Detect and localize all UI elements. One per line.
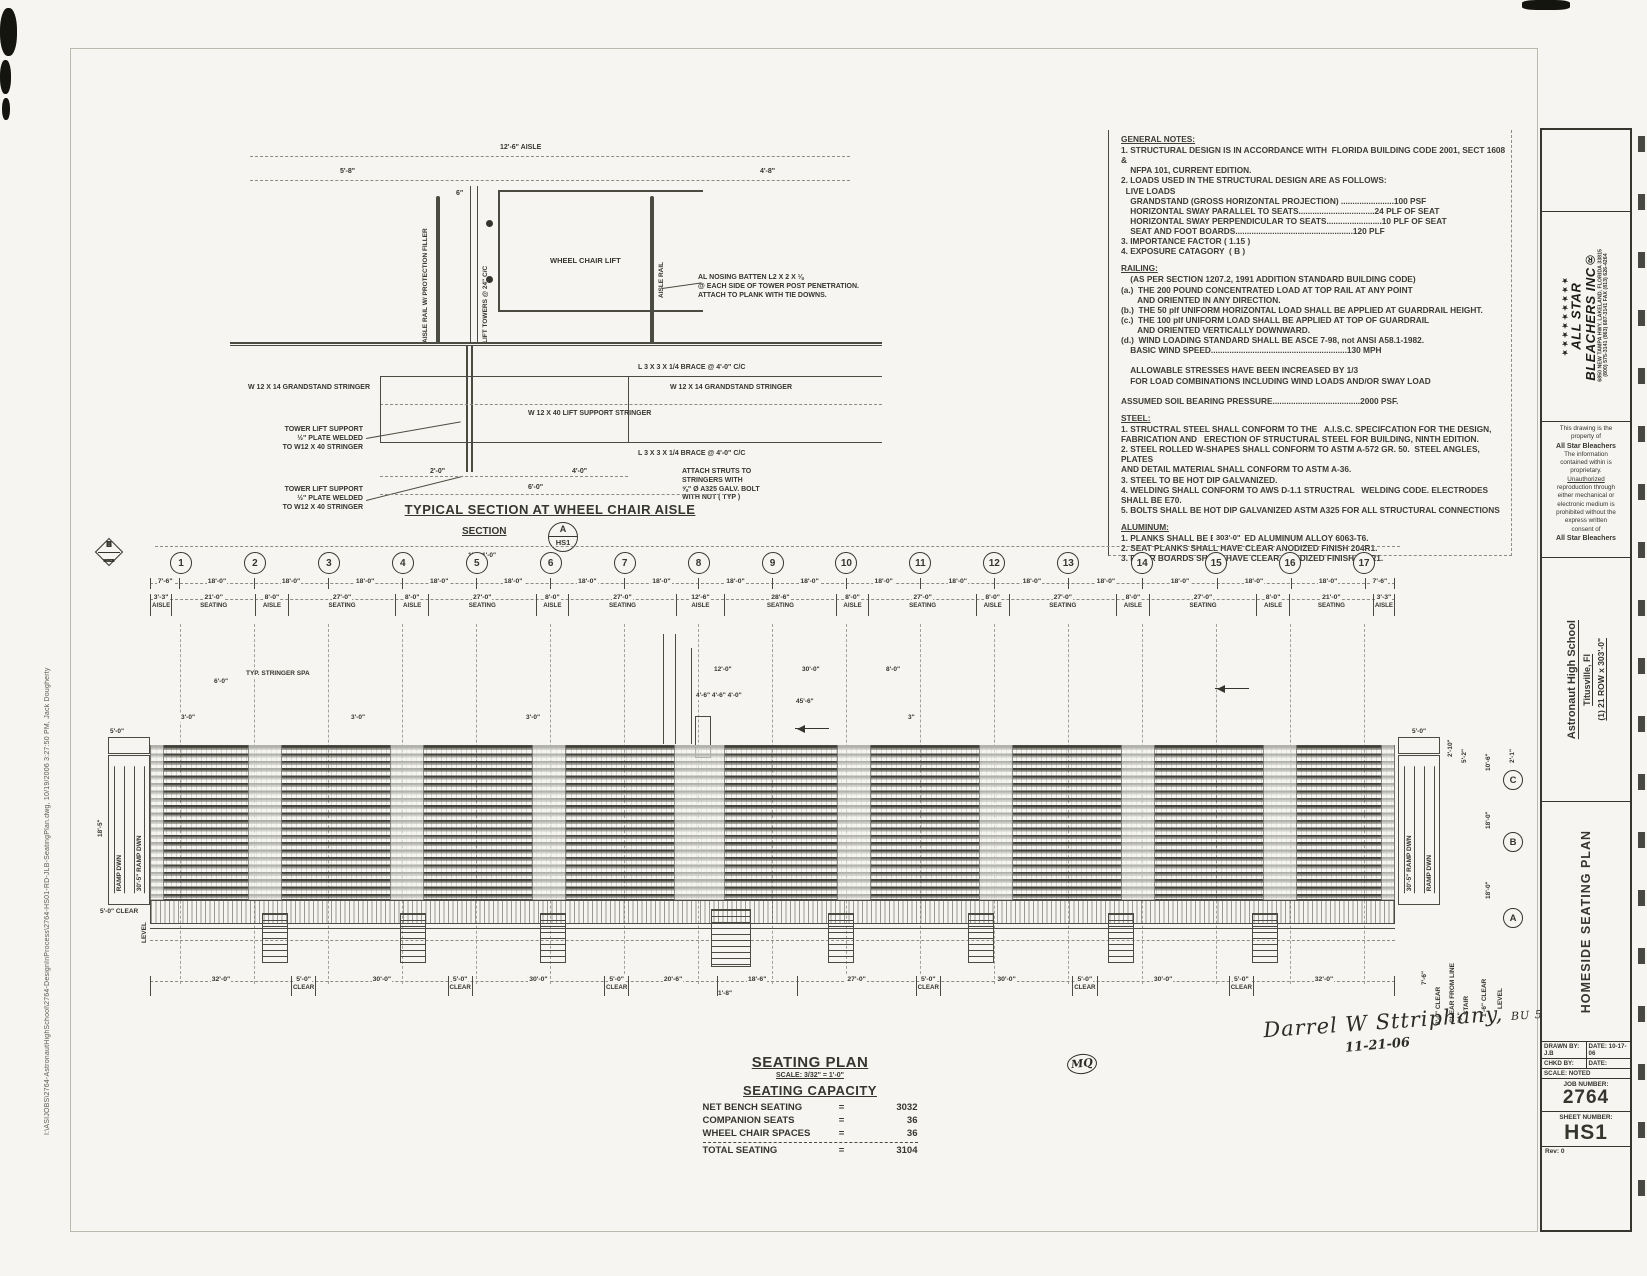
aisle-strip [871, 745, 979, 900]
company-phones: (800) 575-3141 (863) 687-3141 FAX (813) … [1604, 249, 1610, 382]
proprietary-line: This drawing is the [1544, 425, 1628, 433]
typ-stringer-dim: 6'-0" [213, 678, 229, 686]
center-dim: 12'-0" [713, 666, 733, 674]
logo-name-2: BLEACHERS INC® [1584, 249, 1598, 384]
dim-line [250, 180, 850, 181]
ramp-down-inner-label: 30'-5" RAMP DWN [134, 766, 145, 893]
center-dim: 8'-0" [885, 666, 901, 674]
bay-dim: 28'-6" SEATING [724, 594, 836, 616]
bottom-dim: 5'-0" CLEAR [916, 976, 940, 996]
dim-label: 5'-0" [1411, 728, 1427, 736]
stair [1108, 913, 1134, 963]
grid-number: 13 [1063, 558, 1074, 569]
grid-number: 7 [622, 558, 628, 569]
bay-dim: 8'-0" AISLE [1116, 594, 1149, 616]
brace-upper-label: L 3 X 3 X 1/4 BRACE @ 4'-0" C/C [638, 364, 745, 373]
stringer-line [380, 442, 882, 443]
grid-bubble: 6 [540, 552, 562, 574]
grid-dim: 7'-6" [150, 578, 179, 589]
sheet-number: HS1 [1542, 1121, 1630, 1146]
dim-line [380, 494, 730, 495]
clear-label: 5'-0" CLEAR [99, 908, 139, 916]
grid-number: 11 [915, 558, 926, 569]
grid-bubble: 16 [1279, 552, 1301, 574]
aisle-rail-label: AISLE RAIL W/ PROTECTION FILLER [422, 198, 430, 343]
arrow [1215, 688, 1249, 689]
bay-dim: 12'-6" AISLE [676, 594, 724, 616]
aisle-strip [837, 745, 871, 900]
ramp-right: 30'-5" RAMP DWN RAMP DWN [1398, 755, 1440, 905]
proprietary-line: prohibited without the [1544, 509, 1628, 517]
capacity-total: TOTAL SEATING = 3104 [703, 1142, 918, 1158]
bottom-dim-row: 32'-0" 5'-0" CLEAR 30'-0" 5'-0" CLEAR [150, 976, 1395, 996]
bottom-dim: 32'-0" [150, 976, 291, 996]
bottom-dim: 18'-6" [717, 976, 797, 996]
bottom-dim: 5'-0" CLEAR [448, 976, 472, 996]
dim-label: 7'-6" [1421, 956, 1429, 986]
center-dim: 45'-6" [795, 698, 815, 706]
grid-bubble: 1 [170, 552, 192, 574]
stringer-centerline [380, 404, 882, 405]
section-marker: A HS1 [95, 538, 123, 566]
job-number: 2764 [1542, 1088, 1630, 1112]
grid-bubble: 15 [1205, 552, 1227, 574]
row-dim: 10'-6" [1485, 738, 1493, 772]
grid-dim: 18'-0" [624, 578, 698, 589]
ramp-landing [108, 737, 150, 754]
bottom-dim: 30'-0" [315, 976, 447, 996]
bay-dim: 27'-0" SEATING [1009, 594, 1117, 616]
proprietary-line: either mechanical or [1544, 492, 1628, 500]
drawn-date: DATE: 10-17-06 [1586, 1042, 1631, 1058]
grid-number: 10 [841, 558, 852, 569]
aisle-strip [150, 745, 164, 900]
grid-dim: 18'-0" [1142, 578, 1216, 589]
general-notes-block: GENERAL NOTES: 1. STRUCTURAL DESIGN IS I… [1108, 130, 1512, 556]
proprietary-line: All Star Bleachers [1544, 442, 1628, 451]
brace-lower-label: L 3 X 3 X 1/4 BRACE @ 4'-0" C/C [638, 450, 745, 459]
bay-dim: 27'-0" SEATING [568, 594, 676, 616]
project-info: Astronaut High School Titusville, Fl (1)… [1542, 558, 1630, 802]
marker-sheet: HS1 [95, 558, 123, 563]
lift-aisle-line [691, 648, 692, 744]
stringer-end [628, 376, 629, 442]
section-label: SECTION [462, 526, 506, 537]
bay-dim: 27'-0" SEATING [1149, 594, 1257, 616]
seating-plan: 303'-0" 1 2 3 4 5 6 7 8 9 10 [95, 538, 1535, 1178]
front-edge-line [150, 928, 1395, 929]
aisle-rail-left [436, 196, 440, 344]
grid-dim: 18'-0" [698, 578, 772, 589]
grid-dim: 18'-0" [1291, 578, 1365, 589]
proprietary-line: proprietary. [1544, 467, 1628, 475]
nosing-batten-callout: AL NOSING BATTEN L2 X 2 X ⅛ @ EACH SIDE … [698, 274, 873, 300]
bay-dim: 21'-0" SEATING [171, 594, 255, 616]
front-walkway [150, 900, 1395, 924]
grid-dim: 18'-0" [920, 578, 994, 589]
marker-letter: A [95, 540, 123, 549]
reviewer-initials: MQ [1066, 1052, 1098, 1075]
row-dim: 18'-0" [1485, 866, 1493, 900]
scan-artifact [2, 98, 10, 120]
bay-dim: 3'-3" AISLE [150, 594, 171, 616]
proprietary-line: property of [1544, 433, 1628, 441]
ramp-down-inner-label: 30'-5" RAMP DWN [1404, 766, 1415, 893]
aisle-strip [979, 745, 1013, 900]
aisle-strip [1121, 745, 1155, 900]
checked-by: CHKD BY: [1542, 1059, 1586, 1068]
bottom-dim: 5'-0" CLEAR [604, 976, 628, 996]
note-heading: GENERAL NOTES: [1121, 134, 1507, 144]
aisle-strip [164, 745, 248, 900]
arrow [795, 728, 829, 729]
grid-bubble-row: 1 2 3 4 5 6 7 8 9 10 11 12 [170, 552, 1375, 574]
project-name: Astronaut High School [1566, 620, 1578, 739]
grid-number: 17 [1358, 558, 1369, 569]
grid-dim: 18'-0" [328, 578, 402, 589]
dim-label: 5'-8" [340, 168, 355, 177]
grid-dim: 7'-6" [1365, 578, 1395, 589]
scan-artifact [1522, 0, 1570, 10]
lift-stringer-label: W 12 X 40 LIFT SUPPORT STRINGER [528, 410, 651, 419]
grid-bubble: 13 [1057, 552, 1079, 574]
aisle-overlay [150, 745, 1395, 900]
grid-bubble: 10 [835, 552, 857, 574]
grid-number: 14 [1137, 558, 1148, 569]
checked-by-row: CHKD BY: DATE: [1542, 1059, 1630, 1069]
grid-dim: 18'-0" [994, 578, 1068, 589]
dim-label: 6'-0" [528, 484, 543, 493]
bay-dim: 27'-0" SEATING [868, 594, 976, 616]
grid-bubble: 11 [909, 552, 931, 574]
plan-scale: SCALE: 3/32" = 1'-0" [675, 1072, 945, 1079]
bottom-dim: 5'-0" CLEAR [291, 976, 315, 996]
grid-dim: 18'-0" [772, 578, 846, 589]
ramp-left: RAMP DWN 30'-5" RAMP DWN [108, 755, 150, 905]
logo-name: ALL STAR [1570, 249, 1584, 384]
grid-number: 2 [252, 558, 258, 569]
checked-date: DATE: [1586, 1059, 1631, 1068]
proprietary-line: express written [1544, 517, 1628, 525]
bolt-dot [486, 276, 493, 283]
typical-section-detail: 12'-6" AISLE 5'-8" 4'-8" 6" AISLE RAIL W… [230, 138, 882, 568]
dim-label: 2'-10" [1447, 728, 1455, 758]
grid-bubble: 9 [762, 552, 784, 574]
dim-line [250, 156, 850, 157]
bottom-dim: 27'-0" [797, 976, 916, 996]
wheelchair-lift-outline [498, 190, 703, 312]
ramp-down-label: RAMP DWN [114, 766, 125, 893]
aisle-strip [1381, 745, 1395, 900]
stringer-end [380, 376, 381, 442]
aisle-strip [1297, 745, 1381, 900]
note-body: (AS PER SECTION 1207.2, 1991 ADDITION ST… [1121, 274, 1507, 405]
title-block-empty-box [1542, 130, 1630, 212]
sheet-title: HOMESIDE SEATING PLAN [1542, 802, 1630, 1042]
dim-line [380, 476, 628, 477]
bottom-dim: 5'-0" CLEAR [1072, 976, 1096, 996]
center-dim: 3" [907, 714, 916, 722]
overall-dim-line [155, 546, 1400, 547]
lift-tower-line [470, 186, 471, 344]
stair [828, 913, 854, 963]
revision: Rev: 0 [1542, 1146, 1630, 1156]
grid-number: 1 [178, 558, 184, 569]
grid-number: 15 [1211, 558, 1222, 569]
capacity-row: WHEEL CHAIR SPACES=36 [703, 1128, 918, 1141]
bay-dim: 3'-3" AISLE [1373, 594, 1395, 616]
stair [262, 913, 288, 963]
dim-label: 5'-0" [109, 728, 125, 736]
stair [540, 913, 566, 963]
center-dim: 30'-0" [801, 666, 821, 674]
bay-dim: 8'-0" AISLE [536, 594, 569, 616]
scan-artifact [0, 8, 17, 56]
tower-lift-support-callout: TOWER LIFT SUPPORT ½" PLATE WELDED TO W1… [248, 426, 363, 452]
drawn-by-row: DRAWN BY: J.B DATE: 10-17-06 [1542, 1042, 1630, 1059]
aisle-strip [1263, 745, 1297, 900]
note-heading: RAILING: [1121, 263, 1507, 273]
grandstand-stringer-label: W 12 X 14 GRANDSTAND STRINGER [670, 384, 792, 393]
bay-dim: 8'-0" AISLE [1256, 594, 1289, 616]
note-heading: STEEL: [1121, 413, 1507, 423]
grid-number: 12 [989, 558, 1000, 569]
bay-dim: 8'-0" AISLE [836, 594, 869, 616]
grid-bubble: 8 [688, 552, 710, 574]
bay-dim: 8'-0" AISLE [255, 594, 288, 616]
bottom-dim: 5'-0" CLEAR [1229, 976, 1253, 996]
note-section: STEEL: 1. STRUCTRAL STEEL SHALL CONFORM … [1121, 413, 1507, 515]
grid-bubble: 12 [983, 552, 1005, 574]
grid-number: 6 [548, 558, 554, 569]
grid-dim: 18'-0" [476, 578, 550, 589]
grid-dim: 18'-0" [550, 578, 624, 589]
bolt-dot [486, 220, 493, 227]
title-block-fields: DRAWN BY: J.B DATE: 10-17-06 CHKD BY: DA… [1542, 1042, 1630, 1230]
bottom-dim: 30'-0" [472, 976, 604, 996]
grid-number: 8 [696, 558, 702, 569]
deck-line [230, 342, 882, 346]
grid-bubble: 7 [614, 552, 636, 574]
grid-dim: 18'-0" [846, 578, 920, 589]
bay-dim-row: 3'-3" AISLE 21'-0" SEATING 8'-0" AISLE 2… [150, 594, 1395, 616]
grid-number: 5 [474, 558, 480, 569]
bottom-dim: 30'-0" [1097, 976, 1229, 996]
grid-bubble: 2 [244, 552, 266, 574]
row-circle-c: C [1503, 770, 1523, 790]
sheet-number-label: SHEET NUMBER: [1542, 1112, 1630, 1121]
project-city: Titusville, Fl [1582, 654, 1592, 706]
center-dim: 4'-6" 4'-6" 4'-0" [695, 692, 743, 700]
note-heading: ALUMINUM: [1121, 522, 1507, 532]
dim-label: 6" [456, 190, 463, 199]
dim-label: 18'-5" [97, 788, 105, 838]
typ-stringer-label: TYP. STRINGER SPA [245, 670, 311, 678]
capacity-row: COMPANION SEATS=36 [703, 1115, 918, 1128]
signature-date: 11-21-06 [1344, 1035, 1410, 1056]
grid-bubble: 4 [392, 552, 414, 574]
lift-aisle-line [675, 634, 676, 744]
bay-dim: 27'-0" SEATING [428, 594, 536, 616]
lift-support-post [466, 346, 473, 472]
aisle-strip [424, 745, 532, 900]
aisle-strip [566, 745, 674, 900]
wheelchair-lift-label: WHEEL CHAIR LIFT [550, 256, 621, 265]
stair [1252, 913, 1278, 963]
grandstand-stringer-label: W 12 X 14 GRANDSTAND STRINGER [248, 384, 370, 393]
proprietary-line: Unauthorized [1544, 476, 1628, 484]
file-path-stamp: I:\ASIJOBS\2764-AstronautHighSchool\2764… [44, 555, 51, 1135]
front-edge-dashed [150, 940, 1395, 941]
stair [968, 913, 994, 963]
overall-dim-label: 303'-0" [1213, 533, 1244, 542]
approval-signature: Darrel W Sttriphany, BU 518 [1263, 998, 1560, 1043]
aisle-strip [532, 745, 566, 900]
proprietary-line: The information [1544, 451, 1628, 459]
level-label: LEVEL [141, 914, 149, 944]
ramp-landing [1398, 737, 1440, 754]
lift-aisle-line [663, 634, 664, 744]
aisle-strip [248, 745, 282, 900]
title-block: ★★★★★★★★★ ALL STAR BLEACHERS INC® 6850 N… [1540, 128, 1632, 1232]
bay-dim: 8'-0" AISLE [395, 594, 428, 616]
stringer-line [380, 376, 882, 377]
bay-dim: 8'-0" AISLE [976, 594, 1009, 616]
aisle-strip [282, 745, 390, 900]
small-dim: 3'-0" [180, 714, 196, 722]
capacity-row: NET BENCH SEATING=3032 [703, 1102, 918, 1115]
project-config: (1) 21 ROW x 303'-0" [1596, 638, 1606, 721]
bottom-dim: 20'-6" [628, 976, 716, 996]
proprietary-notice: This drawing is theproperty ofAll Star B… [1542, 422, 1630, 558]
capacity-table: NET BENCH SEATING=3032 COMPANION SEATS=3… [703, 1102, 918, 1140]
scan-artifact [0, 60, 11, 94]
aisle-strip [674, 745, 724, 900]
row-circle-a: A [1503, 908, 1523, 928]
capacity-title: SEATING CAPACITY [675, 1083, 945, 1098]
proprietary-line: contained within is [1544, 459, 1628, 467]
stair-center [711, 909, 751, 967]
grid-bubble: 17 [1353, 552, 1375, 574]
stair [400, 913, 426, 963]
drawn-by: DRAWN BY: J.B [1542, 1042, 1586, 1058]
dim-label: 5'-2" [1461, 734, 1469, 764]
bottom-dim: 30'-0" [940, 976, 1072, 996]
grid-dim: 18'-0" [1217, 578, 1291, 589]
grid-bubble: 3 [318, 552, 340, 574]
aisle-strip [1013, 745, 1121, 900]
bay-dim: 27'-0" SEATING [288, 594, 396, 616]
note-body: 1. STRUCTURAL DESIGN IS IN ACCORDANCE WI… [1121, 145, 1507, 256]
aisle-strip [1155, 745, 1263, 900]
grid-number: 16 [1285, 558, 1296, 569]
plan-title-block: SEATING PLAN SCALE: 3/32" = 1'-0" SEATIN… [675, 1054, 945, 1158]
aisle-strip [390, 745, 424, 900]
company-logo: ★★★★★★★★★ ALL STAR BLEACHERS INC® 6850 N… [1542, 212, 1630, 422]
bottom-dim: 32'-0" [1253, 976, 1395, 996]
struts-callout: ATTACH STRUTS TO STRINGERS WITH ⅝" Ø A32… [682, 468, 792, 503]
proprietary-line: All Star Bleachers [1544, 534, 1628, 543]
dim-label: 4'-8" [760, 168, 775, 177]
grid-number: 4 [400, 558, 406, 569]
section-bubble-letter: A [549, 523, 577, 537]
row-dim: 18'-0" [1485, 796, 1493, 830]
aisle-dim-label: 12'-6" AISLE [500, 144, 541, 153]
aisle-strip [725, 745, 837, 900]
note-section: GENERAL NOTES: 1. STRUCTURAL DESIGN IS I… [1121, 134, 1507, 256]
scale-field: SCALE: NOTED [1542, 1069, 1630, 1079]
proprietary-line: consent of [1544, 526, 1628, 534]
leader-line [366, 476, 463, 501]
drawing-sheet: I:\ASIJOBS\2764-AstronautHighSchool\2764… [0, 0, 1647, 1276]
scan-artifact-dashes [1638, 136, 1645, 1202]
row-circle-b: B [1503, 832, 1523, 852]
bay-dim: 21'-0" SEATING [1289, 594, 1373, 616]
small-dim: 3'-0" [525, 714, 541, 722]
grid-number: 3 [326, 558, 332, 569]
note-body: 1. STRUCTRAL STEEL SHALL CONFORM TO THE … [1121, 424, 1507, 515]
proprietary-line: reproduction through [1544, 484, 1628, 492]
dim-label: 2'-1" [1509, 734, 1517, 764]
lift-tower-line [477, 186, 478, 344]
grid-bubble: 5 [466, 552, 488, 574]
grid-number: 9 [770, 558, 776, 569]
grid-bubble: 14 [1131, 552, 1153, 574]
detail-title: TYPICAL SECTION AT WHEEL CHAIR AISLE [290, 502, 810, 517]
grid-dim: 18'-0" [254, 578, 328, 589]
note-section: RAILING: (AS PER SECTION 1207.2, 1991 AD… [1121, 263, 1507, 406]
grid-dim: 18'-0" [402, 578, 476, 589]
plan-title: SEATING PLAN [675, 1054, 945, 1071]
ramp-down-label: RAMP DWN [1424, 766, 1435, 893]
grid-dim: 18'-0" [1068, 578, 1142, 589]
small-dim: 3'-0" [350, 714, 366, 722]
grid-dim: 18'-0" [179, 578, 253, 589]
grid-dim-row: 7'-6" 18'-0" 18'-0" 18'-0" 18'-0" 18'-0"… [150, 578, 1395, 589]
proprietary-line: electronic medium is [1544, 501, 1628, 509]
